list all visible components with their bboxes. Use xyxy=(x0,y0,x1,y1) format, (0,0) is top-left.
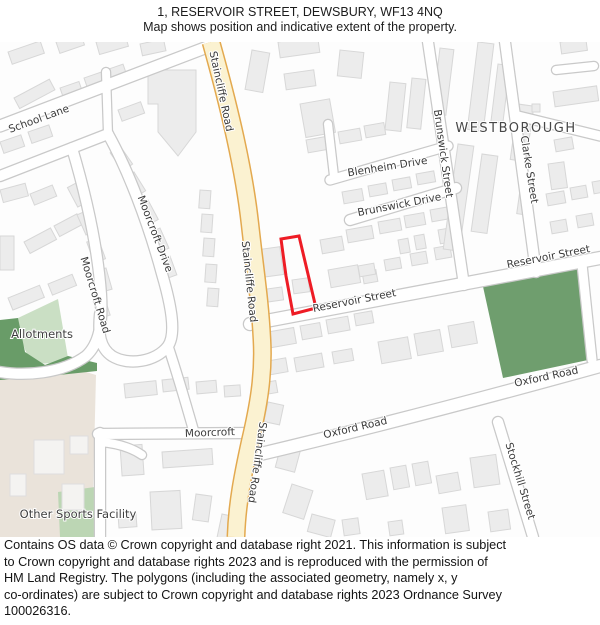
map-description: Map shows position and indicative extent… xyxy=(0,20,600,35)
street-label-moorcroft: Moorcroft xyxy=(185,426,235,440)
copyright-line: to Crown copyright and database rights 2… xyxy=(4,554,600,571)
copyright-line: co-ordinates) are subject to Crown copyr… xyxy=(4,587,600,604)
property-address: 1, RESERVOIR STREET, DEWSBURY, WF13 4NQ xyxy=(0,0,600,20)
area-label-other-sports-facility: Other Sports Facility xyxy=(20,507,137,521)
property-boundary xyxy=(281,236,316,314)
os-map: School Lane Staincliffe Road Staincliffe… xyxy=(0,42,600,537)
area-label-westborough: WESTBOROUGH xyxy=(455,121,576,136)
copyright-line: HM Land Registry. The polygons (includin… xyxy=(4,570,600,587)
map-canvas: School Lane Staincliffe Road Staincliffe… xyxy=(0,42,600,537)
area-label-allotments: Allotments xyxy=(11,327,73,341)
property-map-report: 1, RESERVOIR STREET, DEWSBURY, WF13 4NQ … xyxy=(0,0,600,625)
copyright-line: 100026316. xyxy=(4,603,600,620)
copyright-notice: Contains OS data © Crown copyright and d… xyxy=(0,537,600,625)
copyright-line: Contains OS data © Crown copyright and d… xyxy=(4,537,600,554)
report-header: 1, RESERVOIR STREET, DEWSBURY, WF13 4NQ … xyxy=(0,0,600,42)
